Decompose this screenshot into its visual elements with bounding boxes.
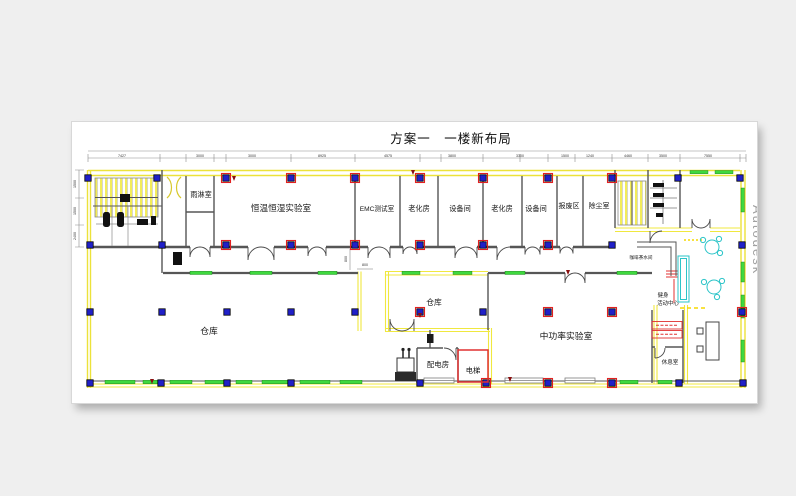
dim-label: 3300 bbox=[516, 154, 524, 158]
room-label-rain-room: 雨淋室 bbox=[190, 190, 212, 199]
drawing-title: 方案一 一楼新布局 bbox=[390, 131, 512, 146]
dim-label: 3000 bbox=[248, 154, 256, 158]
dim-label: 3000 bbox=[196, 154, 204, 158]
restroom-right bbox=[650, 180, 677, 224]
autodesk-watermark: Autodesk bbox=[750, 205, 757, 275]
dim-label: 3500 bbox=[659, 154, 667, 158]
room-label-equipment-room-1: 设备间 bbox=[449, 204, 471, 213]
room-label-aging-room-2: 老化房 bbox=[491, 204, 513, 213]
dim-label: 3800 bbox=[448, 154, 456, 158]
app-background: 方案一 一楼新布局 7427 3000 3000 8925 4575 3800 … bbox=[0, 0, 796, 496]
lounge-table bbox=[697, 322, 719, 360]
room-label-warehouse-small: 仓库 bbox=[426, 297, 442, 307]
dim-label: 1500 bbox=[561, 154, 569, 158]
power-equipment-icon bbox=[395, 348, 416, 381]
drawing-sheet: 方案一 一楼新布局 7427 3000 3000 8925 4575 3800 … bbox=[72, 122, 757, 403]
room-label-aging-room-1: 老化房 bbox=[408, 204, 430, 213]
cafe-seating bbox=[678, 236, 725, 302]
room-label-mid-power-lab: 中功率实验室 bbox=[540, 330, 593, 341]
red-triangle-markers bbox=[150, 170, 570, 384]
room-label-climate-lab: 恒温恒湿实验室 bbox=[251, 202, 312, 213]
room-label-coffee-bar: 咖啡茶水间 bbox=[630, 254, 653, 261]
room-label-warehouse-main: 仓库 bbox=[200, 325, 218, 336]
dim-label: 4575 bbox=[384, 154, 392, 158]
room-label-fitness-line2: 活动中心 bbox=[657, 299, 679, 307]
dim-label: 2400 bbox=[73, 232, 77, 240]
room-label-lounge: 休息室 bbox=[662, 358, 679, 366]
dim-label: 7427 bbox=[118, 154, 126, 158]
room-label-equipment-room-2: 设备间 bbox=[525, 204, 547, 213]
dim-label: 8925 bbox=[318, 154, 326, 158]
dim-label: 4460 bbox=[624, 154, 632, 158]
room-label-emc-room: EMC测试室 bbox=[360, 204, 395, 213]
room-label-elevator: 电梯 bbox=[466, 366, 480, 375]
dim-label: 1500 bbox=[73, 207, 77, 215]
dim-label: 800 bbox=[362, 263, 368, 267]
room-label-power-room: 配电房 bbox=[427, 360, 449, 369]
staircase-right bbox=[618, 181, 646, 225]
room-label-scrap-area: 报废区 bbox=[559, 201, 580, 210]
dim-label: 800 bbox=[344, 256, 348, 262]
partition-walls bbox=[88, 170, 745, 383]
floor-plan: 方案一 一楼新布局 7427 3000 3000 8925 4575 3800 … bbox=[72, 122, 757, 403]
dim-label: 7550 bbox=[704, 154, 712, 158]
dim-label: 1500 bbox=[73, 180, 77, 188]
room-label-fitness-line1: 健身 bbox=[658, 291, 669, 299]
staircase-left bbox=[95, 178, 158, 217]
room-label-dust-room: 除尘室 bbox=[589, 201, 610, 210]
dim-label: 1240 bbox=[586, 154, 594, 158]
